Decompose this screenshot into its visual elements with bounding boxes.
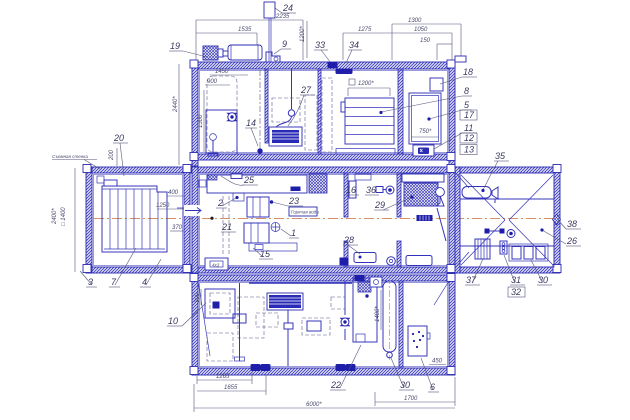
svg-text:3: 3 — [88, 277, 93, 287]
svg-text:2440*: 2440* — [173, 96, 179, 113]
svg-text:29: 29 — [374, 200, 385, 210]
svg-text:21: 21 — [221, 222, 232, 232]
svg-text:11: 11 — [464, 123, 473, 133]
svg-text:1700: 1700 — [404, 396, 418, 402]
svg-text:1200*: 1200* — [358, 81, 374, 87]
svg-text:26: 26 — [566, 236, 577, 246]
svg-text:33: 33 — [315, 40, 325, 50]
svg-text:300: 300 — [195, 292, 201, 303]
svg-text:13: 13 — [464, 145, 474, 155]
svg-text:2400*: 2400* — [52, 208, 58, 225]
svg-text:18: 18 — [463, 67, 473, 77]
svg-text:1050: 1050 — [414, 27, 428, 33]
svg-text:4x3: 4x3 — [212, 263, 220, 268]
svg-text:19: 19 — [170, 41, 180, 51]
svg-text:36: 36 — [366, 185, 376, 195]
svg-text:1: 1 — [291, 228, 296, 238]
svg-text:8: 8 — [464, 86, 469, 96]
svg-text:400: 400 — [168, 190, 179, 196]
svg-text:2: 2 — [217, 198, 223, 208]
svg-text:10: 10 — [168, 316, 178, 326]
svg-text:6000*: 6000* — [306, 402, 322, 408]
svg-text:9: 9 — [282, 39, 287, 49]
svg-text:20: 20 — [113, 133, 124, 143]
svg-text:1450: 1450 — [215, 69, 229, 75]
svg-text:25: 25 — [243, 175, 255, 185]
svg-text:1275: 1275 — [358, 27, 372, 33]
svg-text:14: 14 — [246, 118, 256, 128]
svg-text:900: 900 — [207, 79, 218, 85]
svg-text:Горячая вода: Горячая вода — [291, 210, 319, 215]
svg-text:750*: 750* — [419, 129, 432, 135]
svg-text:24: 24 — [282, 3, 293, 13]
svg-text:450: 450 — [432, 359, 443, 365]
svg-text:34: 34 — [349, 40, 359, 50]
svg-text:4: 4 — [142, 277, 147, 287]
svg-text:1300: 1300 — [198, 114, 204, 128]
svg-text:32: 32 — [511, 287, 521, 297]
svg-text:Съемная стенка: Съемная стенка — [52, 154, 88, 159]
svg-text:37: 37 — [466, 275, 477, 285]
svg-text:28: 28 — [343, 235, 354, 245]
svg-text:12: 12 — [464, 133, 474, 143]
svg-text:1250: 1250 — [156, 203, 170, 209]
svg-text:1200*: 1200* — [300, 26, 306, 42]
svg-text:1400*: 1400* — [375, 306, 381, 322]
svg-text:370: 370 — [172, 225, 183, 231]
svg-text:1655: 1655 — [224, 385, 238, 391]
svg-text:35: 35 — [495, 151, 506, 161]
svg-text:15: 15 — [260, 249, 271, 259]
svg-text:38: 38 — [567, 219, 577, 229]
svg-text:22: 22 — [330, 380, 341, 390]
svg-text:23: 23 — [288, 196, 299, 206]
svg-text:16: 16 — [346, 185, 356, 195]
svg-text:150: 150 — [420, 38, 431, 44]
svg-text:1300: 1300 — [408, 18, 422, 24]
svg-text:27: 27 — [300, 85, 312, 95]
svg-text:1265: 1265 — [216, 374, 230, 380]
svg-text:□ 1400: □ 1400 — [61, 207, 67, 226]
svg-text:200: 200 — [109, 149, 115, 161]
svg-text:17: 17 — [464, 110, 475, 120]
svg-text:2235: 2235 — [275, 14, 290, 20]
svg-text:1535: 1535 — [238, 27, 252, 33]
